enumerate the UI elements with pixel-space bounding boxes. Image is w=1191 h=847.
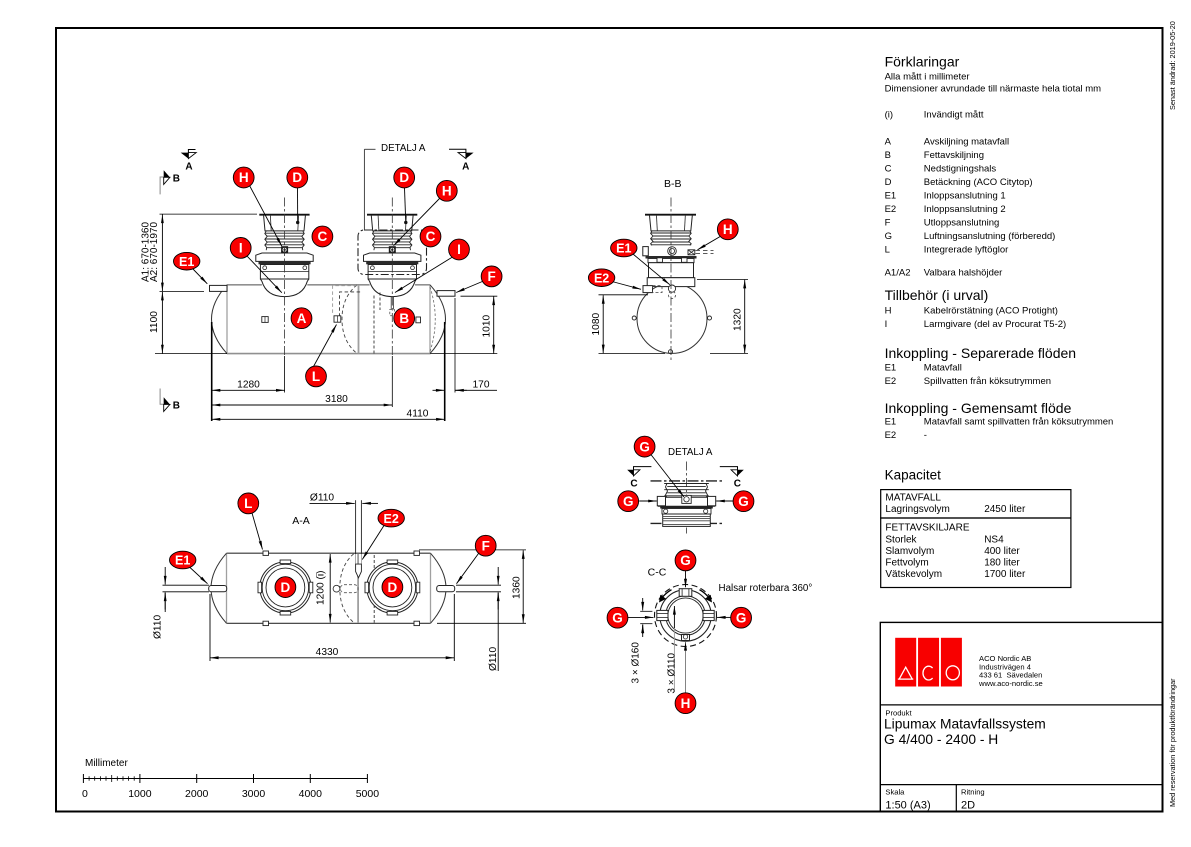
svg-text:G: G	[639, 439, 650, 454]
svg-text:0: 0	[82, 788, 88, 800]
svg-text:1360: 1360	[511, 576, 522, 599]
svg-text:Invändigt mått: Invändigt mått	[924, 110, 984, 121]
svg-text:H: H	[239, 170, 249, 185]
svg-text:1010: 1010	[482, 315, 493, 338]
svg-text:3 × Ø110: 3 × Ø110	[667, 652, 678, 693]
svg-text:E1: E1	[885, 363, 897, 374]
svg-text:Ø110: Ø110	[488, 647, 499, 671]
svg-text:Avskiljning matavfall: Avskiljning matavfall	[924, 137, 1009, 148]
svg-text:3180: 3180	[325, 394, 348, 405]
svg-text:A: A	[185, 161, 192, 172]
svg-text:H: H	[723, 222, 733, 237]
svg-text:A2: 670-1970: A2: 670-1970	[149, 222, 160, 282]
svg-text:2000: 2000	[185, 788, 209, 800]
svg-text:1100: 1100	[149, 311, 160, 333]
svg-text:Ritning: Ritning	[961, 788, 985, 797]
svg-text:1:50 (A3): 1:50 (A3)	[885, 800, 930, 812]
svg-text:G: G	[680, 553, 691, 568]
svg-text:Nedstigningshals: Nedstigningshals	[924, 164, 997, 175]
svg-text:A: A	[462, 162, 469, 173]
svg-text:Vätskevolym: Vätskevolym	[885, 569, 942, 580]
svg-text:3000: 3000	[242, 788, 266, 800]
svg-text:L: L	[885, 245, 890, 256]
svg-text:Fettvolym: Fettvolym	[885, 558, 928, 569]
svg-text:5000: 5000	[356, 788, 380, 800]
svg-text:F: F	[482, 538, 490, 553]
svg-text:Matavfall: Matavfall	[924, 363, 962, 374]
svg-text:Betäckning (ACO Citytop): Betäckning (ACO Citytop)	[924, 177, 1033, 188]
svg-text:Inloppsanslutning 2: Inloppsanslutning 2	[924, 204, 1006, 215]
svg-text:3 × Ø160: 3 × Ø160	[631, 642, 642, 684]
svg-text:H: H	[681, 696, 691, 711]
svg-text:4000: 4000	[299, 788, 323, 800]
svg-text:Med reservation för produktför: Med reservation för produktförändringar	[1168, 678, 1177, 807]
svg-text:E2: E2	[594, 271, 609, 285]
svg-text:I: I	[239, 241, 243, 256]
svg-text:D: D	[292, 170, 302, 185]
svg-text:E2: E2	[384, 512, 399, 526]
svg-text:D: D	[885, 177, 892, 188]
svg-text:I: I	[885, 319, 888, 330]
svg-text:-: -	[924, 430, 927, 441]
svg-text:2D: 2D	[961, 800, 975, 812]
svg-text:E1: E1	[616, 242, 631, 256]
svg-text:Slamvolym: Slamvolym	[885, 546, 934, 557]
svg-text:Spillvatten från köksutrymmen: Spillvatten från köksutrymmen	[924, 376, 1051, 387]
svg-text:1000: 1000	[128, 788, 152, 800]
svg-text:400 liter: 400 liter	[984, 546, 1020, 557]
svg-text:A1/A2: A1/A2	[885, 268, 911, 279]
svg-text:(i): (i)	[885, 110, 893, 121]
svg-text:Matavfall samt spillvatten frå: Matavfall samt spillvatten från köksutry…	[924, 417, 1114, 428]
svg-text:1700 liter: 1700 liter	[984, 569, 1026, 580]
svg-text:DETALJ A: DETALJ A	[381, 143, 426, 154]
svg-text:E2: E2	[885, 376, 897, 387]
svg-text:L: L	[312, 369, 320, 384]
svg-text:Alla mått i millimeter: Alla mått i millimeter	[885, 72, 970, 83]
svg-text:Tillbehör (i urval): Tillbehör (i urval)	[885, 287, 989, 303]
svg-text:E1: E1	[179, 255, 194, 269]
svg-text:H: H	[442, 184, 452, 199]
svg-text:Inkoppling - Gemensamt flöde: Inkoppling - Gemensamt flöde	[885, 400, 1072, 416]
svg-text:1200 (i): 1200 (i)	[316, 570, 327, 605]
svg-text:Kapacitet: Kapacitet	[885, 468, 942, 483]
svg-text:Larmgivare (del av Procurat T5: Larmgivare (del av Procurat T5-2)	[924, 319, 1066, 330]
svg-text:G: G	[738, 494, 749, 509]
svg-text:Inloppsanslutning 1: Inloppsanslutning 1	[924, 191, 1006, 202]
svg-text:A: A	[885, 137, 892, 148]
svg-text:DETALJ A: DETALJ A	[668, 447, 713, 458]
svg-text:B: B	[399, 311, 409, 326]
svg-text:1320: 1320	[733, 308, 744, 331]
svg-text:Millimeter: Millimeter	[85, 758, 128, 769]
svg-text:Lipumax Matavfallssystem: Lipumax Matavfallssystem	[884, 717, 1046, 732]
svg-text:Inkoppling - Separerade flöden: Inkoppling - Separerade flöden	[885, 345, 1076, 361]
svg-text:Halsar roterbara 360°: Halsar roterbara 360°	[719, 583, 813, 594]
svg-text:Kabelrörstätning (ACO Protight: Kabelrörstätning (ACO Protight)	[924, 306, 1058, 317]
svg-text:4330: 4330	[316, 647, 339, 658]
svg-text:E1: E1	[175, 554, 190, 568]
svg-text:Fettavskiljning: Fettavskiljning	[924, 150, 984, 161]
svg-text:FETTAVSKILJARE: FETTAVSKILJARE	[885, 522, 969, 533]
svg-text:1280: 1280	[237, 379, 260, 390]
svg-text:NS4: NS4	[984, 534, 1004, 545]
svg-text:Storlek: Storlek	[885, 534, 917, 545]
svg-text:G: G	[885, 231, 892, 242]
svg-text:www.aco-nordic.se: www.aco-nordic.se	[978, 679, 1043, 688]
svg-text:Ø110: Ø110	[310, 493, 334, 504]
svg-text:Valbara halshöjder: Valbara halshöjder	[924, 268, 1003, 279]
svg-text:B: B	[173, 174, 180, 185]
svg-text:Ø110: Ø110	[153, 615, 164, 639]
svg-text:Senast ändrad: 2019-05-20: Senast ändrad: 2019-05-20	[1168, 21, 1177, 110]
svg-text:D: D	[399, 170, 409, 185]
svg-text:C-C: C-C	[648, 567, 667, 579]
svg-text:Luftningsanslutning (förberedd: Luftningsanslutning (förberedd)	[924, 231, 1056, 242]
svg-text:170: 170	[473, 379, 490, 390]
svg-text:G: G	[736, 610, 747, 625]
svg-text:G 4/400 - 2400 - H: G 4/400 - 2400 - H	[884, 732, 998, 747]
svg-text:A-A: A-A	[292, 515, 310, 527]
svg-text:2450 liter: 2450 liter	[984, 504, 1026, 515]
svg-text:B-B: B-B	[664, 178, 682, 190]
svg-text:4110: 4110	[407, 408, 429, 419]
svg-text:1080: 1080	[591, 313, 602, 336]
svg-text:C: C	[885, 164, 892, 175]
svg-text:F: F	[487, 269, 495, 284]
svg-text:E1: E1	[885, 417, 897, 428]
svg-text:C: C	[426, 229, 436, 244]
svg-text:Skala: Skala	[885, 788, 905, 797]
svg-text:180 liter: 180 liter	[984, 558, 1020, 569]
svg-text:C: C	[734, 478, 741, 489]
svg-text:Utloppsanslutning: Utloppsanslutning	[924, 218, 1000, 229]
svg-text:D: D	[388, 580, 398, 595]
svg-text:G: G	[612, 610, 623, 625]
svg-text:A: A	[297, 311, 307, 326]
svg-text:D: D	[281, 580, 291, 595]
svg-text:C: C	[630, 478, 637, 489]
svg-text:E2: E2	[885, 204, 897, 215]
svg-text:E2: E2	[885, 430, 897, 441]
svg-text:F: F	[885, 218, 891, 229]
svg-text:L: L	[244, 496, 252, 511]
svg-text:MATAVFALL: MATAVFALL	[885, 492, 941, 503]
svg-text:G: G	[623, 494, 634, 509]
svg-text:Förklaringar: Förklaringar	[885, 54, 960, 70]
svg-text:Lagringsvolym: Lagringsvolym	[885, 504, 949, 515]
svg-text:C: C	[318, 229, 328, 244]
svg-text:B: B	[885, 150, 891, 161]
svg-text:H: H	[885, 306, 892, 317]
svg-text:I: I	[457, 242, 461, 257]
svg-text:Dimensioner avrundade till när: Dimensioner avrundade till närmaste hela…	[885, 84, 1102, 95]
svg-text:Integrerade lyftöglor: Integrerade lyftöglor	[924, 245, 1009, 256]
svg-text:E1: E1	[885, 191, 897, 202]
svg-text:B: B	[173, 401, 180, 412]
